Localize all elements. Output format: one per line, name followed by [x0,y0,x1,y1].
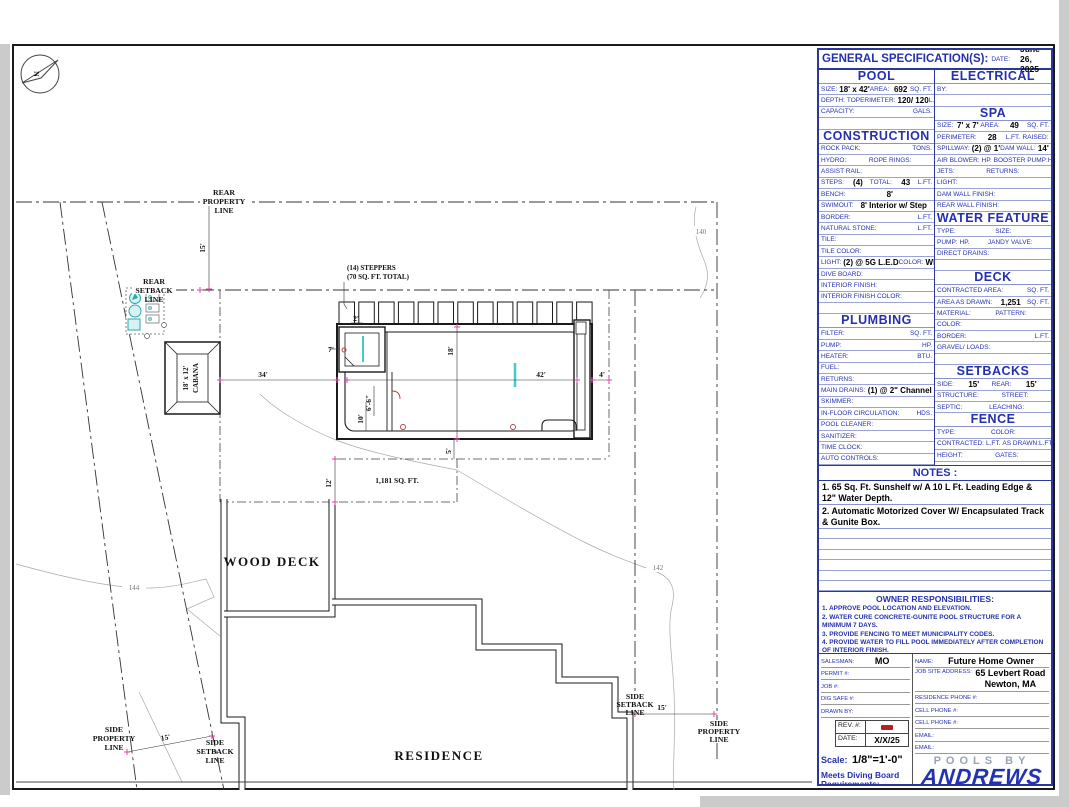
spec-value: 8' Interior w/ Step [856,201,933,210]
spec-row: RETURNS: [819,374,934,385]
title-block: SALESMAN:MOPERMIT #:JOB #:DIG SAFE #:DRA… [819,654,1051,784]
filter-icon [129,305,141,317]
note-empty-row [819,560,1051,570]
spec-label: TILE COLOR: [821,248,861,255]
spec-label: CONTRACTED: [937,440,984,447]
tb-label: RESIDENCE PHONE #: [915,695,978,701]
spec-label: MATERIAL: [937,310,971,317]
rev-dash-icon [881,725,893,730]
spec-row: HEATER:BTU. [819,351,934,362]
spec-label: CONTRACTED AREA: [937,287,1003,294]
spec-label: SIZE: [821,86,837,93]
svg-text:SIDE: SIDE [105,725,123,734]
svg-text:SIDE: SIDE [206,738,224,747]
spec-section-header-setbacks: SETBACKS [935,365,1051,379]
spec-label: SQ. FT. [1027,287,1049,294]
spec-label: STEPS: [821,179,844,186]
title-block-right: NAME:Future Home OwnerJOB SITE ADDRESS:6… [913,654,1051,784]
spec-panel: GENERAL SPECIFICATION(S): DATE: June 26,… [817,48,1053,786]
spec-row: CONTRACTED:L.FT.AS DRAWN:L.FT. [935,439,1051,450]
svg-text:PROPERTY: PROPERTY [203,197,246,206]
spec-row: SWIMOUT:8' Interior w/ Step [819,201,934,212]
title-block-row: PERMIT #: [821,668,910,681]
spec-row: SIZE:7' x 7'AREA:49SQ. FT. [935,121,1051,132]
spec-value: 43 [894,178,918,187]
spec-label: MAIN DRAINS: [821,387,865,394]
svg-text:(14) STEPPERS: (14) STEPPERS [347,264,396,272]
spec-value: 49 [1002,121,1027,130]
spec-value: 7' x 7' [955,121,980,130]
note-empty-row [819,550,1051,560]
spec-row: AUTO CONTROLS: [819,454,934,465]
tb-value: Future Home Owner [933,656,1049,667]
spec-label: SQ. FT. [1027,122,1049,129]
spec-row: POOL CLEANER: [819,420,934,431]
spec-label: STRUCTURE: [937,392,979,399]
spec-label: AS DRAWN: [1002,440,1039,447]
spec-row: AREA AS DRAWN:1,251SQ. FT. [935,297,1051,308]
spec-label: DEPTH: [821,97,845,104]
spec-section-header-construction: CONSTRUCTION [819,130,934,144]
dimensions: 18' 42' 34' 4' 12' 5' 15' 15' 15' 6'-6" … [124,199,717,755]
spec-row: HYDRO:ROPE RINGS: [819,155,934,166]
spec-value: White [926,258,934,267]
spec-label: SANITIZER: [821,433,857,440]
spec-label: AREA: [870,86,890,93]
spec-label: TONS. [912,145,932,152]
spec-value: 1,251 [994,298,1027,307]
spec-label: GRAVEL/ LOADS: [937,344,990,351]
spec-value: 8' [848,190,932,199]
page-margin-right [1059,0,1069,807]
spec-value: (2) @ 5G L.E.D [843,258,898,267]
spec-label: RETURNS: [821,376,854,383]
spec-label: AUTO CONTROLS: [821,455,879,462]
spec-row: STRUCTURE:STREET: [935,391,1051,402]
spec-row: TILE COLOR: [819,246,934,257]
spec-value: 120/ 120 [898,96,929,105]
cabana: 18' x 12' CABANA [165,342,220,414]
owner-item: 3. PROVIDE FENCING TO MEET MUNICIPALITY … [822,631,1048,639]
owner-item: 2. WATER CURE CONCRETE-GUNITE POOL STRUC… [822,614,1048,631]
spec-label: BY: [937,86,947,93]
tb-value-line: 65 Levbert Road [972,668,1049,679]
svg-text:10': 10' [356,414,365,424]
title-block-row: EMAIL: [915,742,1049,755]
spec-label: PUMP: [937,239,958,246]
spec-row: SKIMMER: [819,397,934,408]
title-block-row: DRAWN BY: [821,705,910,718]
svg-text:REAR: REAR [143,277,165,286]
revision-box: REV. #: DATE: X/X/25 [835,720,909,747]
svg-text:LINE: LINE [709,735,728,744]
spec-label: LIGHT: [937,179,957,186]
tb-value-line: Newton, MA [972,679,1049,690]
spec-label: TO [847,97,856,104]
owner-items: 1. APPROVE POOL LOCATION AND ELEVATION.2… [822,605,1048,655]
spec-row: ASSIST RAIL: [819,166,934,177]
spec-label: GALS. [913,108,932,115]
spec-label: RAISED: [1022,134,1049,141]
spec-row: BORDER:L.FT. [935,331,1051,342]
spec-label: ASSIST RAIL: [821,168,862,175]
spec-section-header-water-feature: WATER FEATURE [935,212,1051,226]
logo-name: ANDREWS [914,767,1050,784]
owner-item: 1. APPROVE POOL LOCATION AND ELEVATION. [822,605,1048,613]
tb-date-value: X/X/25 [866,734,908,746]
spec-section-header-pool: POOL [819,70,934,84]
spec-label: HP. [982,157,992,164]
spec-label: L.FT. [1035,333,1049,340]
spec-row: CAPACITY:GALS. [819,107,934,118]
scale-value: 1/8"=1'-0" [852,754,903,766]
spec-row: NATURAL STONE:L.FT. [819,223,934,234]
spec-label: SQ. FT. [1027,299,1049,306]
spec-label: HP. [922,342,932,349]
spec-label: JETS: [937,168,955,175]
tb-label: DIG SAFE #: [821,696,855,702]
spec-row: PUMP:HP. [819,340,934,351]
svg-text:N: N [32,71,41,77]
spec-row: SIZE:18' x 42'AREA:692SQ. FT. [819,84,934,95]
spec-label: DAM WALL FINISH: [937,191,995,198]
spec-label: HP. [960,239,970,246]
svg-text:4': 4' [599,370,605,379]
plan-labels: REAR PROPERTY LINE REAR SETBACK LINE SID… [93,188,741,765]
svg-text:LINE: LINE [205,756,224,765]
spec-label: PATTERN: [973,310,1049,317]
svg-text:42': 42' [536,370,546,379]
spec-columns: POOLSIZE:18' x 42'AREA:692SQ. FT.DEPTH:T… [819,70,1051,466]
spec-label: REAR WALL FINISH: [937,202,999,209]
svg-text:CABANA: CABANA [192,363,200,393]
spec-label: L.FT. [1039,440,1051,447]
spec-label: TOTAL: [870,179,892,186]
tb-value: 65 Levbert RoadNewton, MA [972,668,1049,690]
spec-row: DEPTH:TOPERIMETER:120/ 120L.FT. [819,95,934,106]
spec-row: INTERIOR FINISH: [819,280,934,291]
note-item: 2. Automatic Motorized Cover W/ Encapsul… [819,505,1051,529]
spec-section-header-spa: SPA [935,107,1051,121]
spec-row: BENCH:8' [819,189,934,200]
contour-lines: 144 142 140 [16,207,712,790]
svg-text:REAR: REAR [213,188,235,197]
owner-responsibilities: OWNER RESPONSIBILITIES: 1. APPROVE POOL … [819,591,1051,654]
spec-row: TYPE:COLOR: [935,427,1051,438]
svg-text:LINE: LINE [214,206,233,215]
spec-label: L.FT. [918,179,932,186]
note-empty-row [819,571,1051,581]
svg-text:142: 142 [653,564,664,572]
spec-label: AREA AS DRAWN: [937,299,992,306]
spec-label: L.FT. [1006,134,1020,141]
spec-row: TYPE:SIZE: [935,226,1051,237]
svg-text:7': 7' [328,345,334,354]
site-plan: N 144 142 140 [14,46,819,790]
spec-title: GENERAL SPECIFICATION(S): [822,53,988,65]
spec-label: STREET: [981,392,1049,399]
spec-row: LIGHT: [935,178,1051,189]
spec-label: PUMP: [821,342,842,349]
title-block-row: JOB #: [821,680,910,693]
svg-text:SETBACK: SETBACK [196,747,233,756]
svg-text:RESIDENCE: RESIDENCE [394,748,483,763]
svg-text:LINE: LINE [625,708,644,717]
spec-row: COLOR: [935,320,1051,331]
svg-text:15': 15' [657,703,667,712]
spec-label: DIRECT DRAINS: [937,250,989,257]
spec-section-header-plumbing: PLUMBING [819,314,934,328]
spec-row: DAM WALL FINISH: [935,189,1051,200]
owner-item: 4. PROVIDE WATER TO FILL POOL IMMEDIATEL… [822,639,1048,656]
spec-row [935,462,1051,465]
spec-row: DIVE BOARD: [819,269,934,280]
svg-text:34': 34' [258,370,268,379]
title-block-left: SALESMAN:MOPERMIT #:JOB #:DIG SAFE #:DRA… [819,654,913,784]
spec-row: DIRECT DRAINS: [935,249,1051,260]
spec-label: AREA: [980,122,1000,129]
spec-row: TILE: [819,235,934,246]
tb-label: PERMIT #: [821,671,849,677]
title-block-row: EMAIL: [915,729,1049,742]
rev-value [866,721,908,733]
spec-label: HEATER: [821,353,849,360]
svg-text:LINE: LINE [104,743,123,752]
spec-label: SIZE: [937,122,953,129]
svg-text:1,181 SQ. FT.: 1,181 SQ. FT. [375,476,419,485]
spec-label: L.FT. [929,97,934,104]
tb-label: DRAWN BY: [821,709,853,715]
spec-label: COLOR: [937,321,962,328]
svg-text:WOOD DECK: WOOD DECK [224,554,321,569]
spec-row: SPILLWAY:(2) @ 1'DAM WALL:14' [935,144,1051,155]
spec-value: 692 [891,85,910,94]
note-empty-row [819,529,1051,539]
auto-cover-box [574,320,590,438]
spec-label: ROPE RINGS: [848,157,932,164]
spec-label: POOL CLEANER: [821,421,873,428]
residence-outline [16,499,812,790]
svg-text:18' x 12': 18' x 12' [182,366,190,391]
spec-label: LEACHING: [964,404,1049,411]
svg-text:18': 18' [446,346,455,356]
company-logo: POOLS BY ANDREWS 6 REPUBLIC ROAD, NO. BI… [915,755,1049,784]
spec-row: AIR BLOWER:HP.BOOSTER PUMP:HP. [935,155,1051,166]
spec-row: ROCK PACK:TONS. [819,144,934,155]
spec-label: BORDER: [937,333,967,340]
spec-label: LIGHT: [821,259,841,266]
spec-label: HYDRO: [821,157,846,164]
spec-title-row: GENERAL SPECIFICATION(S): DATE: June 26,… [819,50,1051,70]
notes-header: NOTES : [819,466,1051,481]
title-block-row: RESIDENCE PHONE #: [915,692,1049,705]
tb-label: SALESMAN: [821,659,854,665]
spec-row: MAIN DRAINS:(1) @ 2" Channel [819,385,934,396]
spec-label: L.FT. [918,214,932,221]
spec-label: AIR BLOWER: [937,157,980,164]
spec-value: 15' [956,380,992,389]
svg-text:SETBACK: SETBACK [135,286,172,295]
svg-text:5': 5' [444,448,453,454]
spec-label: IN-FLOOR CIRCULATION: [821,410,899,417]
spec-row: PUMP:HP.JANDY VALVE: [935,237,1051,248]
spec-label: BORDER: [821,214,851,221]
scale-line: Scale: 1/8"=1'-0" [821,750,910,768]
spec-label: L.FT. [986,440,1000,447]
spec-row: GRAVEL/ LOADS: [935,342,1051,353]
spec-label: JANDY VALVE: [972,239,1049,246]
spec-value: (4) [846,178,870,187]
spec-label: SIZE: [958,228,1049,235]
spec-row: SANITIZER: [819,431,934,442]
scale-label: Scale: [821,755,848,765]
spec-label: PERIMETER: [856,97,896,104]
svg-text:6'-6": 6'-6" [364,395,373,411]
spec-label: HEIGHT: [937,452,963,459]
tb-label: JOB #: [821,684,839,690]
spec-row: INTERIOR FINISH COLOR: [819,292,934,303]
spec-value: 15' [1013,380,1049,389]
spec-label: COLOR: [958,429,1049,436]
spec-label: BTU. [917,353,932,360]
spec-column-left: POOLSIZE:18' x 42'AREA:692SQ. FT.DEPTH:T… [819,70,935,465]
owner-header: OWNER RESPONSIBILITIES: [822,594,1048,604]
spec-row: BY: [935,84,1051,95]
svg-text:140: 140 [696,228,707,236]
spec-section-header-electrical: ELECTRICAL [935,70,1051,84]
spec-row: SIDE:15'REAR:15' [935,379,1051,390]
spec-row: IN-FLOOR CIRCULATION:HDS. [819,408,934,419]
spec-value: 14' [1038,144,1049,153]
spec-label: DAM WALL: [1000,145,1036,152]
spec-label: TYPE: [937,429,956,436]
title-block-row: CELL PHONE #: [915,704,1049,717]
title-block-row: SALESMAN:MO [821,655,910,668]
drawing-sheet: N 144 142 140 [12,44,1055,790]
spec-date-label: DATE: [991,56,1010,63]
steppers [339,302,592,326]
spec-label: SWIMOUT: [821,202,854,209]
spec-label: GATES: [965,452,1049,459]
tb-label: JOB SITE ADDRESS: [915,669,972,675]
spec-label: SKIMMER: [821,398,853,405]
spec-label: DIVE BOARD: [821,271,863,278]
svg-text:2': 2' [353,314,359,323]
svg-text:(70 SQ. FT. TOTAL): (70 SQ. FT. TOTAL) [347,273,410,281]
note-empty-row [819,581,1051,591]
spec-label: FUEL: [821,364,839,371]
spec-label: SEPTIC: [937,404,962,411]
spec-value: (1) @ 2" Channel [867,386,932,395]
spec-label: INTERIOR FINISH COLOR: [821,293,902,300]
spec-label: SQ. FT. [910,330,932,337]
spec-label: SQ. FT. [910,86,932,93]
heater-icon [128,319,140,330]
spec-label: TIME CLOCK: [821,444,863,451]
spec-row: CONTRACTED AREA:SQ. FT. [935,285,1051,296]
tb-label: CELL PHONE #: [915,708,958,714]
tb-label: EMAIL: [915,745,934,751]
spec-row: FILTER:SQ. FT. [819,328,934,339]
spec-label: PERIMETER: [937,134,977,141]
spec-label: COLOR: [899,259,924,266]
spec-label: RETURNS: [957,168,1049,175]
spec-label: TYPE: [937,228,956,235]
tb-label: CELL PHONE #: [915,720,958,726]
rev-label: REV. #: [836,721,866,733]
spec-row: PERIMETER:28L.FT.RAISED: [935,132,1051,143]
spec-label: REAR: [992,381,1012,388]
spec-label: FILTER: [821,330,845,337]
spec-row [819,118,934,129]
north-arrow-icon: N [21,55,59,93]
svg-text:15': 15' [198,243,207,253]
spec-value: 28 [979,133,1006,142]
spec-label: BOOSTER PUMP: [994,157,1048,164]
tb-label: EMAIL: [915,733,934,739]
note-item: 1. 65 Sq. Ft. Sunshelf w/ A 10 L Ft. Lea… [819,481,1051,505]
tb-date-label: DATE: [836,734,866,746]
svg-text:12': 12' [324,478,333,488]
spec-row: BORDER:L.FT. [819,212,934,223]
spec-label: SPILLWAY: [937,145,970,152]
svg-text:PROPERTY: PROPERTY [93,734,136,743]
tb-label: NAME: [915,659,933,665]
spec-label: HDS. [916,410,932,417]
page-margin-bottom [700,796,1069,807]
spec-row: JETS:RETURNS: [935,166,1051,177]
spec-column-right: ELECTRICALBY:SPASIZE:7' x 7'AREA:49SQ. F… [935,70,1051,465]
svg-text:144: 144 [129,584,140,592]
spec-row: MATERIAL:PATTERN: [935,308,1051,319]
svg-text:15': 15' [160,732,171,743]
pool [337,320,592,439]
spec-label: BENCH: [821,191,846,198]
title-block-row: DIG SAFE #: [821,693,910,706]
tb-value: MO [854,656,910,667]
spec-label: NATURAL STONE: [821,225,877,232]
spec-label: TILE: [821,236,837,243]
note-empty-row [819,539,1051,549]
title-block-row: CELL PHONE #: [915,717,1049,730]
spec-label: CAPACITY: [821,108,854,115]
spec-row: FUEL: [819,363,934,374]
spec-label: ROCK PACK: [821,145,861,152]
title-block-row: JOB SITE ADDRESS:65 Levbert RoadNewton, … [915,668,1049,692]
title-block-row: NAME:Future Home Owner [915,655,1049,668]
spec-value: (2) @ 1' [972,144,1000,153]
spec-section-header-deck: DECK [935,271,1051,285]
diving-board-note: Meets Diving Board Requirements: [821,771,910,784]
spec-label: INTERIOR FINISH: [821,282,877,289]
page-margin-left [0,44,10,795]
spec-value: 18' x 42' [839,85,870,94]
spec-label: HP. [1048,157,1051,164]
notes-empty-rows [819,529,1051,591]
spec-label: SIDE: [937,381,954,388]
spec-row: LIGHT:(2) @ 5G L.E.DCOLOR:White [819,257,934,268]
spec-label: L.FT. [918,225,932,232]
spec-row: TIME CLOCK: [819,442,934,453]
spec-row: HEIGHT:GATES: [935,450,1051,461]
svg-text:LINE: LINE [144,295,163,304]
spec-section-header-fence: FENCE [935,413,1051,427]
spec-row: STEPS:(4)TOTAL:43L.FT. [819,178,934,189]
